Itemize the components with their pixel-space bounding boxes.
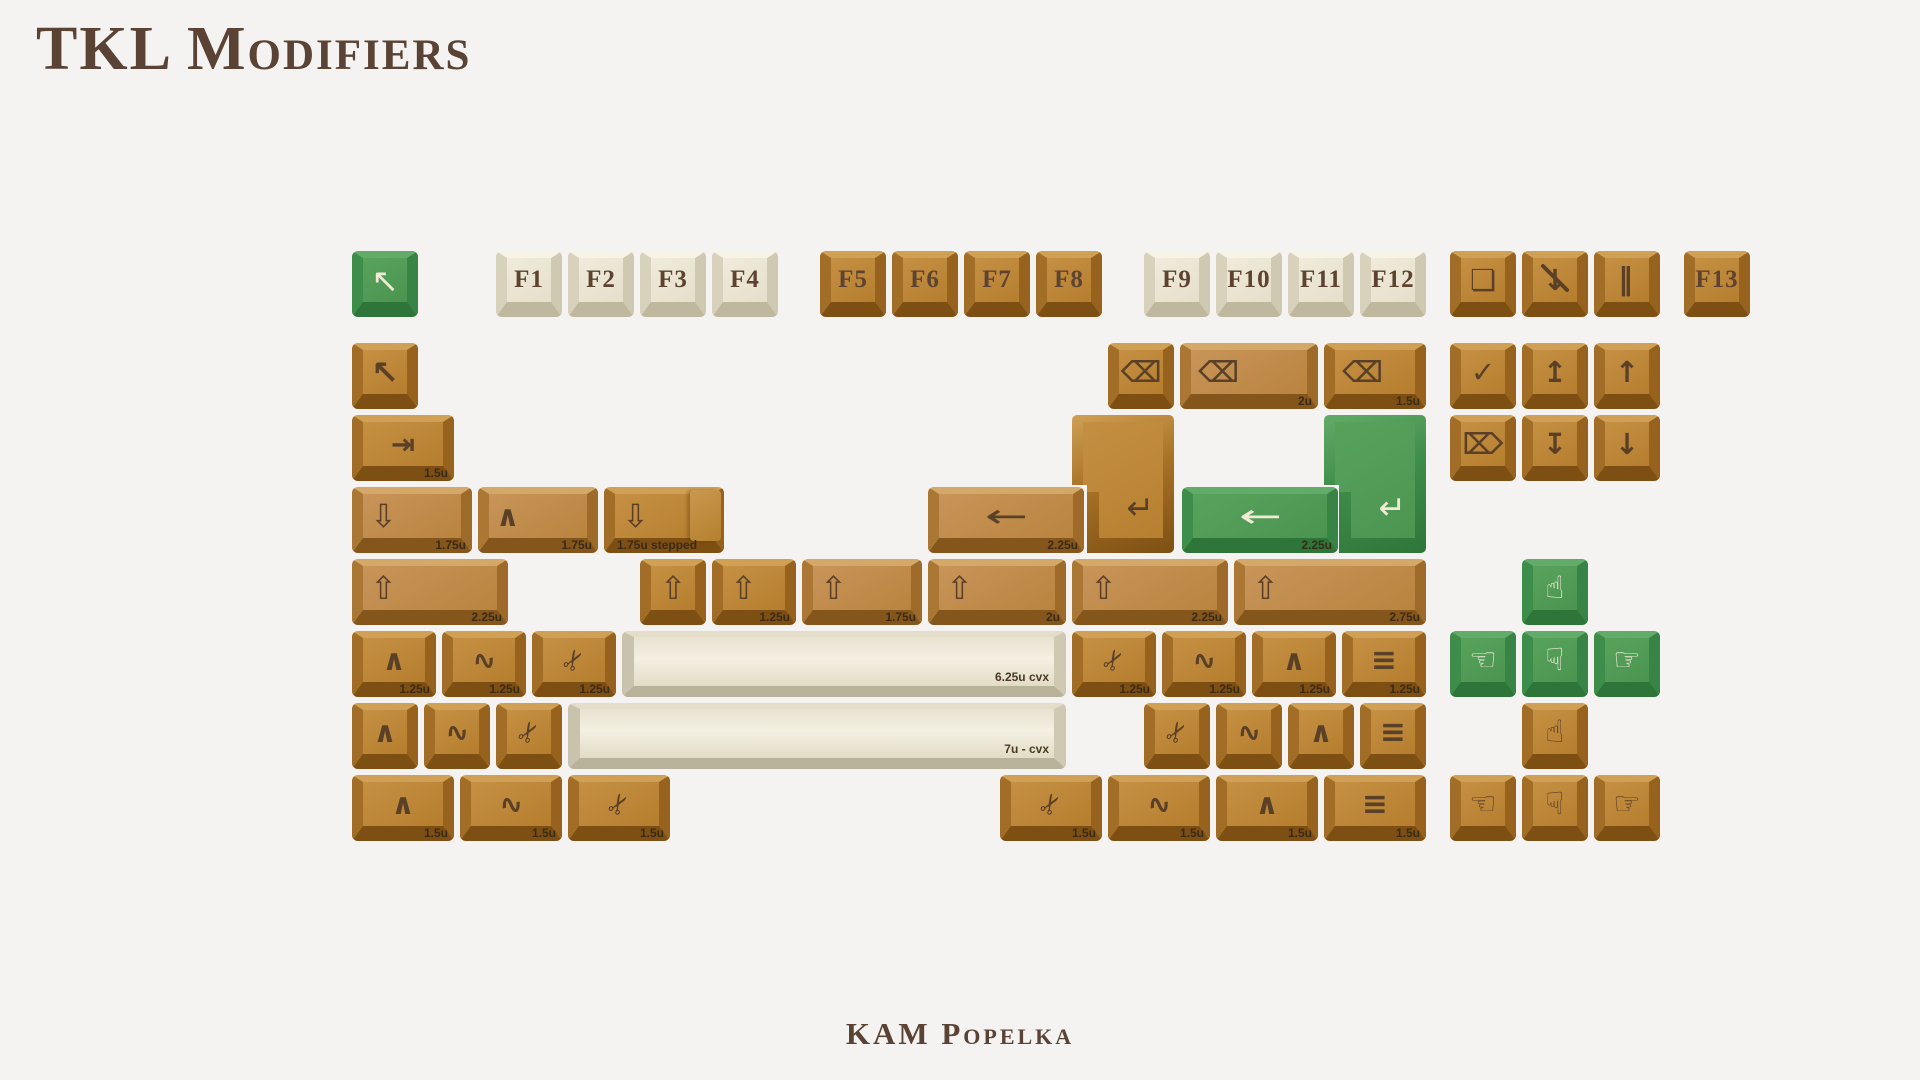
key-legend: F11 <box>1300 266 1342 294</box>
enter-left-icon: ← <box>1239 500 1282 532</box>
super-icon: ∿ <box>1189 643 1219 676</box>
control-icon: ∧ <box>1282 646 1306 675</box>
size-annotation: 1.25u <box>1389 682 1420 696</box>
key-menu-1u: ≡ <box>1360 703 1426 769</box>
super-icon: ∿ <box>469 643 499 676</box>
key-shift-2u: ⇧2u <box>928 559 1066 625</box>
size-annotation: 1.25u <box>399 682 430 696</box>
key-f1: F1 <box>496 251 562 317</box>
size-annotation: 2u <box>1298 394 1312 408</box>
key-control-1-5u-right: ∧1.5u <box>1216 775 1318 841</box>
shift-icon: ⇧ <box>1252 572 1279 604</box>
keycap-layout: ↖F1F2F3F4F5F6F7F8F9F10F11F12❏↓‖F13↖⌫⌫2u⌫… <box>0 0 1920 1080</box>
key-shift-2-25u-left: ⇧2.25u <box>352 559 508 625</box>
key-shift-1u: ⇧ <box>640 559 706 625</box>
size-annotation: 7u - cvx <box>1004 742 1049 756</box>
enter-left-icon: ← <box>985 500 1028 532</box>
brand-footer: KAM Popelka <box>0 1016 1920 1052</box>
key-page-up: ↑ <box>1594 343 1660 409</box>
key-control-1-75u: ∧1.75u <box>478 487 598 553</box>
key-shift-2-25u: ⇧2.25u <box>1072 559 1228 625</box>
shift-icon: ⇧ <box>946 572 973 604</box>
key-spacebar-6-25u: 6.25u cvx <box>622 631 1066 697</box>
key-legend: F8 <box>1054 266 1084 294</box>
key-legend: F2 <box>586 266 616 294</box>
key-arrow-left-brown: ☜ <box>1450 775 1516 841</box>
key-f12: F12 <box>1360 251 1426 317</box>
size-annotation: 1.25u <box>1209 682 1240 696</box>
key-shift-1-75u: ⇧1.75u <box>802 559 922 625</box>
key-f8: F8 <box>1036 251 1102 317</box>
key-arrow-right-brown: ☞ <box>1594 775 1660 841</box>
hand-right-icon: ☞ <box>1613 645 1641 676</box>
backspace-icon: ⌫ <box>1120 358 1161 387</box>
shift-icon: ⇧ <box>730 572 757 604</box>
key-esc-green: ↖ <box>352 251 418 317</box>
key-home: ↥ <box>1522 343 1588 409</box>
key-esc-brown: ↖ <box>352 343 418 409</box>
shift-icon: ⇧ <box>370 572 397 604</box>
key-menu-1-25u: ≡1.25u <box>1342 631 1426 697</box>
end-icon: ↧ <box>1543 430 1567 459</box>
key-legend: F5 <box>838 266 868 294</box>
size-annotation: 2.25u <box>1301 538 1332 552</box>
menu-icon: ≡ <box>1380 717 1406 748</box>
size-annotation: 1.5u <box>1396 394 1420 408</box>
size-annotation: 1.75u <box>561 538 592 552</box>
control-icon: ∧ <box>1309 718 1333 747</box>
size-annotation: 2.25u <box>1191 610 1222 624</box>
size-annotation: 1.5u <box>640 826 664 840</box>
size-annotation: 2.25u <box>1047 538 1078 552</box>
key-shift-1-25u: ⇧1.25u <box>712 559 796 625</box>
key-enter-2-25u-brown: ←2.25u <box>928 487 1084 553</box>
key-backspace-1u: ⌫ <box>1108 343 1174 409</box>
size-annotation: 1.5u <box>532 826 556 840</box>
key-alt-1u-left: ✂ <box>496 703 562 769</box>
key-pause: ‖ <box>1594 251 1660 317</box>
control-icon: ∧ <box>382 646 406 675</box>
hand-right-icon: ☞ <box>1613 789 1641 820</box>
menu-icon: ≡ <box>1371 645 1397 676</box>
alt-icon: ✂ <box>557 643 592 676</box>
hand-down-icon: ☟ <box>1546 645 1565 676</box>
key-caps-lock-1-75u: ⇩1.75u <box>352 487 472 553</box>
size-annotation: 1.75u <box>435 538 466 552</box>
pause-icon: ‖ <box>1618 265 1636 295</box>
hand-down-icon: ☟ <box>1546 789 1565 820</box>
backspace-icon: ⌫ <box>1342 358 1383 387</box>
alt-icon: ✂ <box>1097 643 1132 676</box>
key-alt-1-25u-right: ✂1.25u <box>1072 631 1156 697</box>
hand-left-icon: ☜ <box>1469 645 1497 676</box>
super-icon: ∿ <box>496 787 526 820</box>
key-alt-1-25u-left: ✂1.25u <box>532 631 616 697</box>
key-super-1-5u-right: ∿1.5u <box>1108 775 1210 841</box>
key-page-down: ↓ <box>1594 415 1660 481</box>
size-annotation: 2u <box>1046 610 1060 624</box>
key-delete: ⌦ <box>1450 415 1516 481</box>
key-f4: F4 <box>712 251 778 317</box>
hand-up-icon: ☝ <box>1546 573 1565 604</box>
home-icon: ↥ <box>1543 358 1567 387</box>
shift-icon: ⇧ <box>660 572 687 604</box>
key-super-1-25u-left: ∿1.25u <box>442 631 526 697</box>
alt-icon: ✂ <box>512 715 547 748</box>
key-super-1u-left: ∿ <box>424 703 490 769</box>
enter-icon: ↵ <box>1378 491 1406 524</box>
key-f5: F5 <box>820 251 886 317</box>
key-scroll-lock: ↓ <box>1522 251 1588 317</box>
slash-overlay <box>1540 263 1570 293</box>
key-super-1-5u-left: ∿1.5u <box>460 775 562 841</box>
size-annotation: 1.25u <box>759 610 790 624</box>
control-icon: ∧ <box>391 790 415 819</box>
keycap-side: ↵ <box>1324 415 1426 553</box>
size-annotation: 1.25u <box>1119 682 1150 696</box>
key-alt-1-5u-right: ✂1.5u <box>1000 775 1102 841</box>
key-iso-enter-brown: ↵ <box>1072 415 1174 553</box>
key-control-1u-left: ∧ <box>352 703 418 769</box>
key-super-1u-right: ∿ <box>1216 703 1282 769</box>
key-arrow-down-brown: ☟ <box>1522 775 1588 841</box>
caps-lock-icon: ⇩ <box>622 500 649 532</box>
super-icon: ∿ <box>1234 715 1264 748</box>
backspace-icon: ⌫ <box>1198 358 1239 387</box>
keycap-side: ↵ <box>1072 415 1174 553</box>
key-f13: F13 <box>1684 251 1750 317</box>
hand-up-icon: ☝ <box>1546 717 1565 748</box>
key-arrow-right-green: ☞ <box>1594 631 1660 697</box>
key-print-screen: ❏ <box>1450 251 1516 317</box>
key-insert: ✓ <box>1450 343 1516 409</box>
size-annotation: 2.75u <box>1389 610 1420 624</box>
key-legend: F10 <box>1227 266 1270 294</box>
key-alt-1-5u-left: ✂1.5u <box>568 775 670 841</box>
caps-lock-icon: ⇩ <box>370 500 397 532</box>
key-legend: F1 <box>514 266 544 294</box>
size-annotation: 6.25u cvx <box>995 670 1049 684</box>
alt-icon: ✂ <box>602 787 637 820</box>
keycap-face <box>1072 415 1174 553</box>
key-legend: F12 <box>1371 266 1414 294</box>
key-legend: F4 <box>730 266 760 294</box>
control-icon: ∧ <box>373 718 397 747</box>
key-f7: F7 <box>964 251 1030 317</box>
key-caps-lock-stepped: ⇩1.75u stepped <box>604 487 724 553</box>
insert-icon: ✓ <box>1471 358 1495 387</box>
menu-icon: ≡ <box>1362 789 1388 820</box>
tab-icon: ⇥ <box>391 430 415 459</box>
key-super-1-25u-right: ∿1.25u <box>1162 631 1246 697</box>
size-annotation: 1.75u <box>885 610 916 624</box>
keycap-face <box>1324 415 1426 553</box>
key-tab-1-5u: ⇥1.5u <box>352 415 454 481</box>
control-icon: ∧ <box>496 502 520 531</box>
alt-icon: ✂ <box>1034 787 1069 820</box>
size-annotation: 1.5u <box>424 826 448 840</box>
page-down-icon: ↓ <box>1615 430 1639 459</box>
shift-icon: ⇧ <box>1090 572 1117 604</box>
key-legend: F13 <box>1695 266 1738 294</box>
size-annotation: 1.5u <box>1180 826 1204 840</box>
size-annotation: 1.75u stepped <box>617 538 697 552</box>
key-iso-enter-green: ↵ <box>1324 415 1426 553</box>
super-icon: ∿ <box>1144 787 1174 820</box>
print-screen-icon: ❏ <box>1470 266 1496 295</box>
key-legend: F7 <box>982 266 1012 294</box>
key-arrow-left-green: ☜ <box>1450 631 1516 697</box>
size-annotation: 1.25u <box>579 682 610 696</box>
key-menu-1-5u: ≡1.5u <box>1324 775 1426 841</box>
key-f3: F3 <box>640 251 706 317</box>
key-f11: F11 <box>1288 251 1354 317</box>
size-annotation: 1.5u <box>1288 826 1312 840</box>
key-enter-2-25u-green: ←2.25u <box>1182 487 1338 553</box>
key-control-1-25u-right: ∧1.25u <box>1252 631 1336 697</box>
size-annotation: 2.25u <box>471 610 502 624</box>
size-annotation: 1.25u <box>1299 682 1330 696</box>
key-arrow-up-brown: ☝ <box>1522 703 1588 769</box>
size-annotation: 1.25u <box>489 682 520 696</box>
key-f6: F6 <box>892 251 958 317</box>
key-control-1u-right: ∧ <box>1288 703 1354 769</box>
key-legend: F6 <box>910 266 940 294</box>
page-up-icon: ↑ <box>1615 358 1639 387</box>
size-annotation: 1.5u <box>1396 826 1420 840</box>
size-annotation: 1.5u <box>1072 826 1096 840</box>
arrow-pointer-icon: ↖ <box>371 356 399 389</box>
key-legend: F3 <box>658 266 688 294</box>
delete-icon: ⌦ <box>1462 430 1503 459</box>
shift-icon: ⇧ <box>820 572 847 604</box>
key-spacebar-7u: 7u - cvx <box>568 703 1066 769</box>
control-icon: ∧ <box>1255 790 1279 819</box>
key-backspace-1-5u: ⌫1.5u <box>1324 343 1426 409</box>
key-end: ↧ <box>1522 415 1588 481</box>
enter-icon: ↵ <box>1126 491 1154 524</box>
key-backspace-2u: ⌫2u <box>1180 343 1318 409</box>
size-annotation: 1.5u <box>424 466 448 480</box>
scroll-lock-icon: ↓ <box>1543 266 1567 295</box>
key-arrow-up-green: ☝ <box>1522 559 1588 625</box>
key-shift-2-75u: ⇧2.75u <box>1234 559 1426 625</box>
hand-left-icon: ☜ <box>1469 789 1497 820</box>
keycap-step <box>690 490 721 541</box>
key-control-1-5u-left: ∧1.5u <box>352 775 454 841</box>
arrow-pointer-icon: ↖ <box>371 264 399 297</box>
key-f9: F9 <box>1144 251 1210 317</box>
key-arrow-down-green: ☟ <box>1522 631 1588 697</box>
key-f2: F2 <box>568 251 634 317</box>
super-icon: ∿ <box>442 715 472 748</box>
key-f10: F10 <box>1216 251 1282 317</box>
key-legend: F9 <box>1162 266 1192 294</box>
key-alt-1u-right: ✂ <box>1144 703 1210 769</box>
key-control-1-25u-left: ∧1.25u <box>352 631 436 697</box>
alt-icon: ✂ <box>1160 715 1195 748</box>
